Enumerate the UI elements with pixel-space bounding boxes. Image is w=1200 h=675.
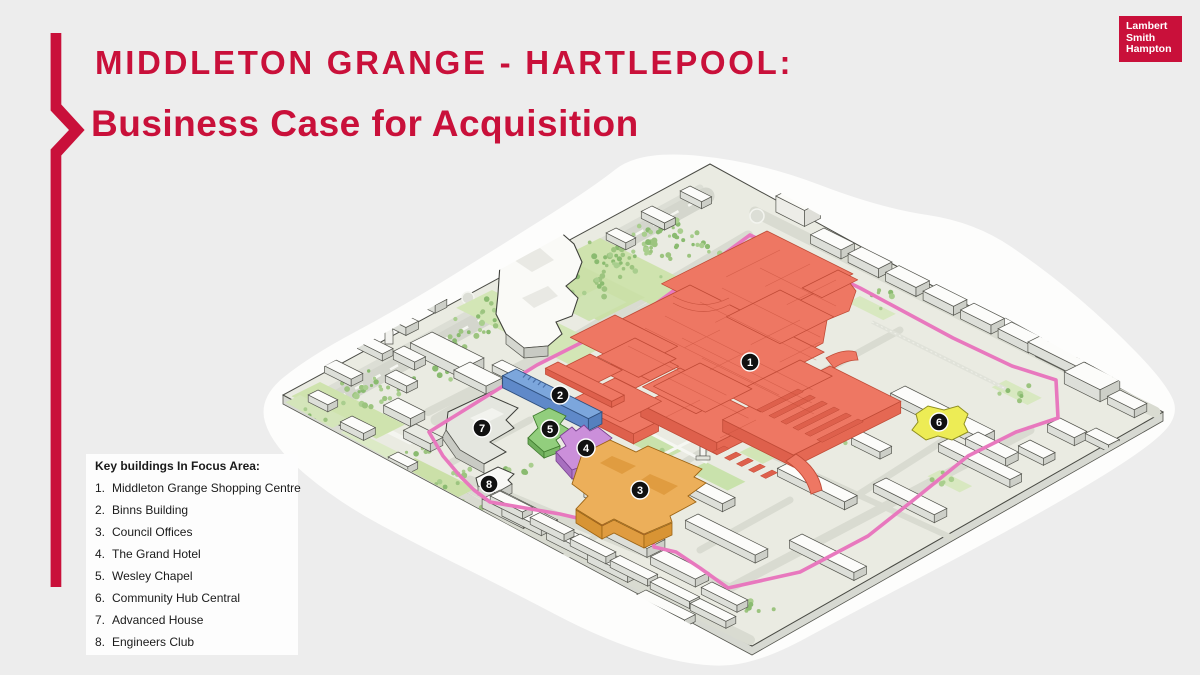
svg-text:4: 4 — [583, 443, 590, 455]
svg-text:7: 7 — [479, 423, 485, 435]
svg-text:5: 5 — [547, 424, 553, 436]
svg-text:2: 2 — [557, 390, 563, 402]
svg-text:6: 6 — [936, 417, 942, 429]
svg-text:3: 3 — [637, 485, 643, 497]
svg-text:8: 8 — [486, 479, 492, 491]
svg-text:1: 1 — [747, 357, 753, 369]
